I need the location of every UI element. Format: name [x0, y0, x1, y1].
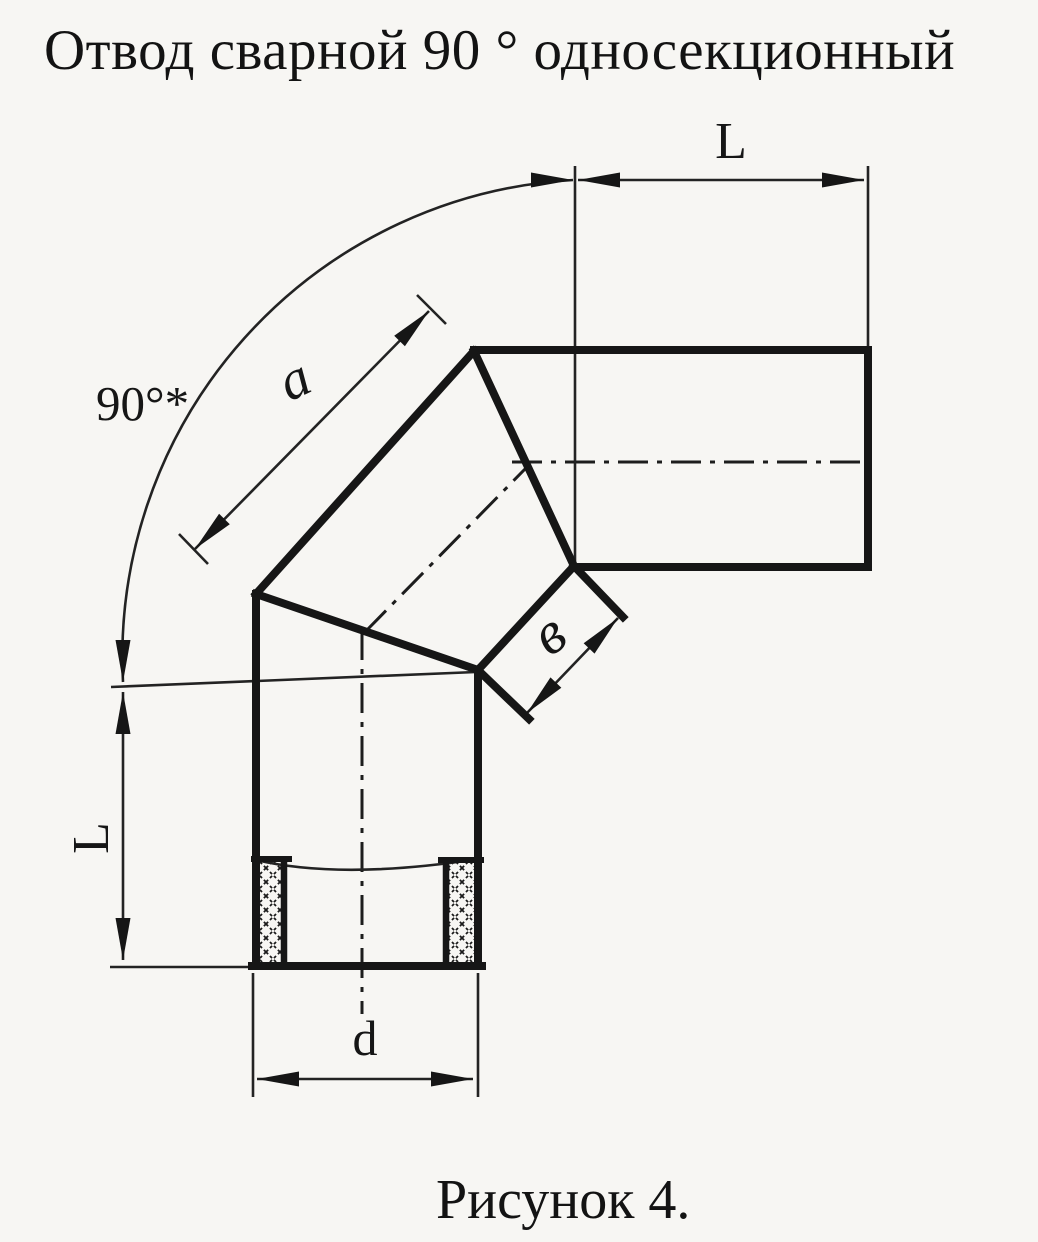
- arrowhead-L-left-top: [116, 692, 131, 734]
- arrowhead-a-upper: [394, 306, 434, 346]
- arrowhead-L-left-bottom: [116, 918, 131, 960]
- weld-seam-lower: [256, 594, 478, 670]
- dimension-lines: [110, 166, 868, 1097]
- centerlines: [362, 462, 870, 1014]
- angle-arc: [122, 180, 573, 682]
- label-d: d: [353, 1010, 378, 1066]
- arrowhead-d-left: [257, 1072, 299, 1087]
- figure-caption: Рисунок 4.: [436, 1168, 690, 1232]
- socket-hatch-bands: [259, 862, 475, 964]
- arrowheads: [116, 173, 865, 1087]
- dim-line-a: [195, 311, 429, 549]
- label-b: в: [519, 599, 578, 668]
- label-L-top: L: [715, 113, 747, 170]
- label-angle: 90°*: [96, 376, 189, 431]
- miter-face-lower-edge: [478, 670, 529, 719]
- socket-walls: [254, 859, 481, 964]
- elbow-drawing: L L 90°* a в d: [0, 0, 1038, 1242]
- arrowhead-arc-bottom: [116, 640, 131, 682]
- arrowhead-d-right: [431, 1072, 473, 1087]
- weld-seam-upper: [474, 351, 574, 566]
- label-L-left: L: [63, 822, 120, 854]
- scanned-page: Отвод сварной 90 ° односекционный: [0, 0, 1038, 1242]
- arrowhead-L-top-left: [578, 173, 620, 188]
- arrowhead-a-lower: [190, 514, 230, 554]
- extension-line-miter: [111, 672, 476, 687]
- arrowhead-arc-top: [531, 173, 573, 188]
- centerline-diagonal: [365, 468, 526, 632]
- label-a: a: [269, 346, 321, 414]
- arrowhead-L-top-right: [822, 173, 864, 188]
- miter-face-upper-edge: [574, 566, 623, 617]
